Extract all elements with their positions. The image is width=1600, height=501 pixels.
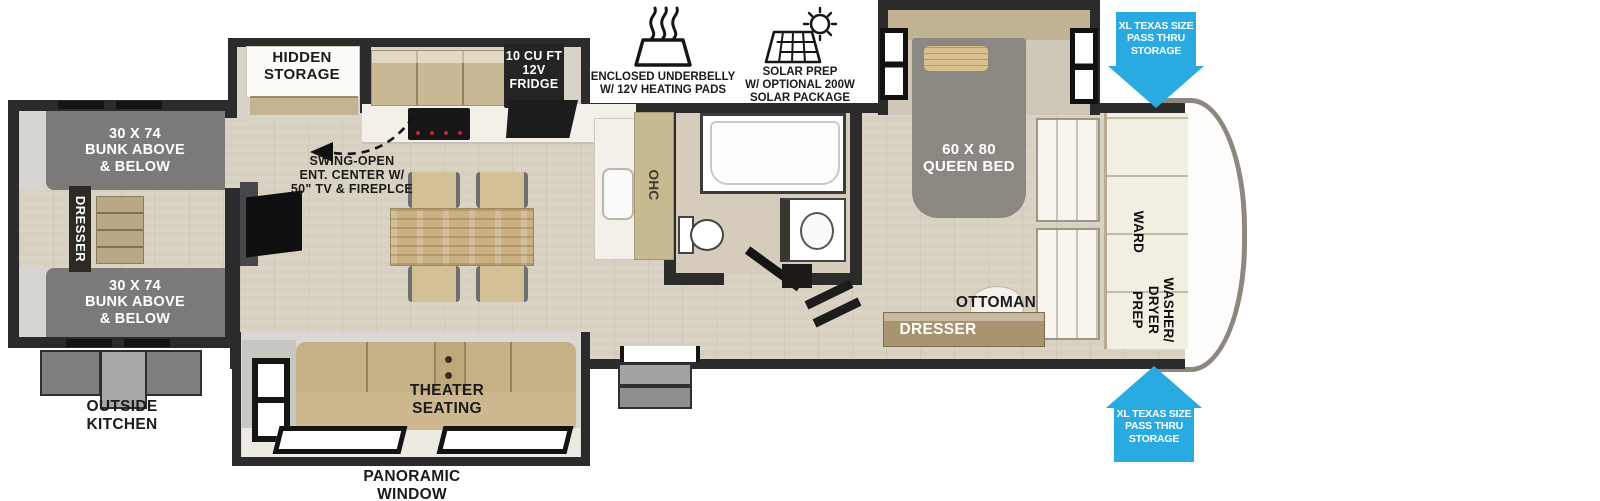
bunkroom-window-icon <box>116 101 162 109</box>
bedroom-closet <box>1036 228 1100 340</box>
slideout-window-icon <box>1070 28 1098 104</box>
hidden-storage-label: HIDDEN STORAGE <box>246 50 358 84</box>
stove <box>408 108 470 140</box>
kitchen-upper-cabinets <box>371 50 507 106</box>
hidden-storage-cabinet <box>250 96 358 115</box>
bunkroom-dresser-label: DRESSER <box>69 186 91 272</box>
theater-seating-label: THEATER SEATING <box>387 382 507 417</box>
dining-chair <box>476 266 528 302</box>
shower-pan <box>710 121 840 185</box>
entry-step <box>618 386 692 409</box>
panoramic-window-label: PANORAMIC WINDOW <box>332 468 492 501</box>
bunkroom-doorway <box>222 118 244 188</box>
stove-knob <box>416 131 420 135</box>
pass-thru-bottom-label: XL TEXAS SIZE PASS THRU STORAGE <box>1106 408 1202 445</box>
outside-kitchen-label: OUTSIDE KITCHEN <box>52 398 192 433</box>
ward-label: WARD <box>1130 202 1146 262</box>
bed-headboard-shelf <box>888 10 1090 40</box>
entry-step <box>618 363 692 386</box>
bathroom-wall <box>850 103 862 285</box>
solar-prep-label: SOLAR PREP W/ OPTIONAL 200W SOLAR PACKAG… <box>725 66 875 105</box>
outside-kitchen-box <box>145 350 202 396</box>
bunkroom-window-icon <box>66 339 112 347</box>
ohc-label: OHC <box>645 160 661 210</box>
panoramic-window-icon <box>437 426 574 454</box>
cupholder-icon <box>445 356 452 363</box>
cupholder-icon <box>445 372 452 379</box>
slideout-window-icon <box>880 28 908 100</box>
bathroom-wall <box>664 273 724 285</box>
underbelly-label: ENCLOSED UNDERBELLY W/ 12V HEATING PADS <box>588 71 738 97</box>
solar-prep-icon <box>760 6 840 66</box>
fridge-label: 10 CU FT 12V FRIDGE <box>502 49 566 91</box>
pass-thru-top-label: XL TEXAS SIZE PASS THRU STORAGE <box>1108 20 1204 57</box>
tv <box>246 191 302 258</box>
bunkroom-window-icon <box>124 339 170 347</box>
bathroom-sink <box>800 212 834 250</box>
bedroom-dresser-label: DRESSER <box>880 321 996 339</box>
dining-chair <box>476 172 528 208</box>
ottoman-label: OTTOMAN <box>938 294 1054 312</box>
ent-center-label: SWING-OPEN ENT. CENTER W/ 50" TV & FIREP… <box>287 154 417 196</box>
dining-chair <box>408 266 460 302</box>
washer-dryer-prep-label: WASHER/ DRYER PREP <box>1120 264 1176 356</box>
stove-knob <box>458 131 462 135</box>
bunkroom-window-icon <box>58 101 104 109</box>
fridge-footprint <box>506 100 578 138</box>
bunk-bottom-label: 30 X 74 BUNK ABOVE & BELOW <box>60 278 210 327</box>
kitchen-sink <box>602 168 634 220</box>
dining-table <box>390 208 534 266</box>
toilet-bowl <box>690 219 724 251</box>
bunk-top-label: 30 X 74 BUNK ABOVE & BELOW <box>60 126 210 175</box>
stove-knob <box>430 131 434 135</box>
entry-door-opening <box>620 346 700 362</box>
bathroom-cabinet <box>782 264 812 288</box>
heating-pads-icon <box>628 4 698 70</box>
rv-floorplan: 30 X 74 BUNK ABOVE & BELOW 30 X 74 BUNK … <box>0 0 1600 501</box>
bed-pillow <box>924 46 988 71</box>
bedroom-closet <box>1036 118 1100 222</box>
queen-bed-label: 60 X 80 QUEEN BED <box>894 142 1044 176</box>
bunkroom-cabinet <box>96 196 144 264</box>
outside-kitchen-box <box>40 350 101 396</box>
stove-knob <box>444 131 448 135</box>
panoramic-window-icon <box>273 426 408 454</box>
kitchen-slideout-divider <box>360 42 371 113</box>
